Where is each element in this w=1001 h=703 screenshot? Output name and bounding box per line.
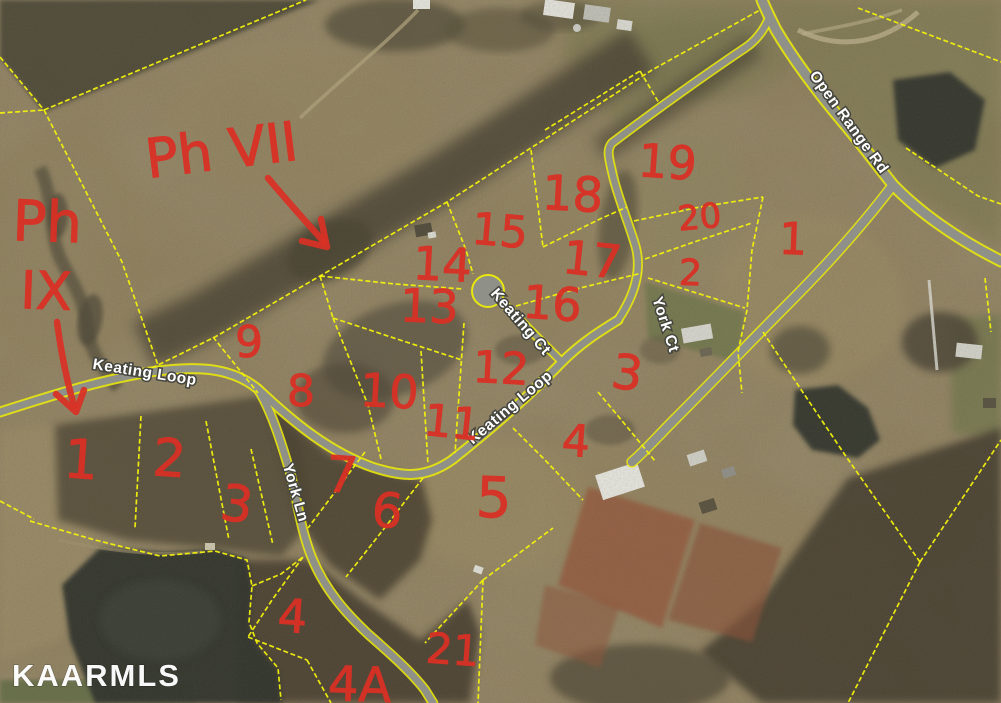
lot-4-east: 4 xyxy=(560,415,591,468)
lot-7: 7 xyxy=(324,445,360,505)
watermark-kaarmls: KAARMLS xyxy=(12,658,181,693)
lot-16: 16 xyxy=(521,275,583,333)
lot-13: 13 xyxy=(399,278,459,334)
lot-4-west: 4 xyxy=(276,588,309,644)
lot-8: 8 xyxy=(287,366,315,417)
aerial-plat-map: Open Range Rd Keating Loop Keating Loop … xyxy=(0,0,1001,703)
lot-4a: 4A xyxy=(327,656,392,703)
lot-11: 11 xyxy=(421,395,482,452)
lot-6: 6 xyxy=(369,482,405,541)
map-canvas: Open Range Rd Keating Loop Keating Loop … xyxy=(0,0,1001,703)
lot-2-east: 2 xyxy=(678,253,702,295)
lot-1-east: 1 xyxy=(778,214,808,266)
lot-9: 9 xyxy=(235,317,263,368)
lot-5: 5 xyxy=(475,465,513,531)
lot-12: 12 xyxy=(472,342,531,396)
lot-21: 21 xyxy=(424,624,481,677)
lot-10: 10 xyxy=(359,363,420,420)
phase-label-ix-line1: Ph xyxy=(12,189,83,256)
lot-1-west: 1 xyxy=(62,427,101,492)
lot-18: 18 xyxy=(541,165,605,224)
lot-20: 20 xyxy=(676,196,723,240)
lot-19: 19 xyxy=(636,133,698,191)
phase-label-ix-line2: IX xyxy=(20,261,73,323)
lot-15: 15 xyxy=(470,204,530,260)
lot-2-west: 2 xyxy=(151,428,188,490)
